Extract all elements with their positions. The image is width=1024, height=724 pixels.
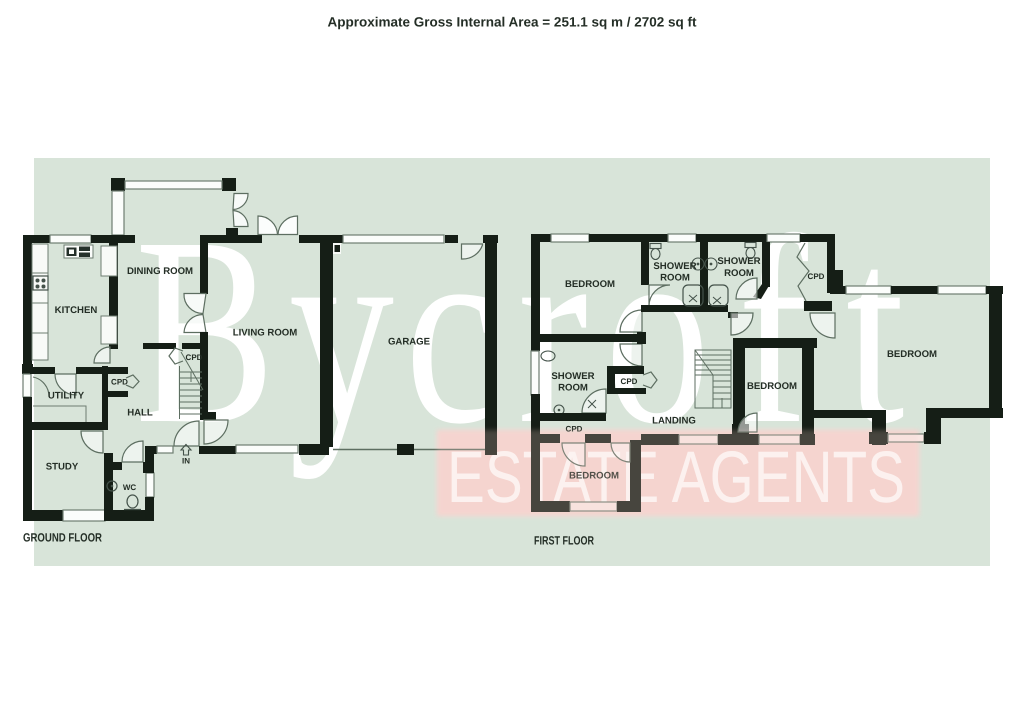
svg-text:KITCHEN: KITCHEN: [55, 305, 98, 316]
svg-text:UTILITY: UTILITY: [48, 391, 85, 402]
svg-text:ROOM: ROOM: [724, 268, 754, 279]
svg-text:SHOWER: SHOWER: [551, 371, 594, 382]
svg-text:GARAGE: GARAGE: [388, 337, 431, 348]
svg-text:ROOM: ROOM: [660, 273, 690, 284]
svg-text:CPD: CPD: [808, 272, 825, 281]
svg-text:Approximate Gross Internal Are: Approximate Gross Internal Area = 251.1 …: [327, 15, 697, 30]
svg-text:GROUND FLOOR: GROUND FLOOR: [23, 531, 102, 545]
svg-text:CPD: CPD: [186, 353, 203, 362]
svg-text:FIRST FLOOR: FIRST FLOOR: [534, 534, 594, 548]
svg-text:DINING ROOM: DINING ROOM: [127, 266, 193, 277]
svg-text:LIVING ROOM: LIVING ROOM: [233, 328, 298, 339]
svg-text:BEDROOM: BEDROOM: [887, 349, 937, 360]
svg-text:IN: IN: [182, 457, 190, 466]
svg-text:SHOWER: SHOWER: [717, 256, 760, 267]
svg-text:HALL: HALL: [127, 408, 153, 419]
svg-text:ROOM: ROOM: [558, 383, 588, 394]
svg-text:WC: WC: [123, 483, 137, 492]
svg-text:CPD: CPD: [111, 378, 128, 387]
svg-text:BEDROOM: BEDROOM: [565, 279, 615, 290]
svg-text:BEDROOM: BEDROOM: [747, 381, 797, 392]
svg-text:STUDY: STUDY: [46, 462, 79, 473]
svg-text:CPD: CPD: [621, 377, 638, 386]
svg-text:LANDING: LANDING: [652, 416, 696, 427]
svg-text:SHOWER: SHOWER: [653, 261, 696, 272]
